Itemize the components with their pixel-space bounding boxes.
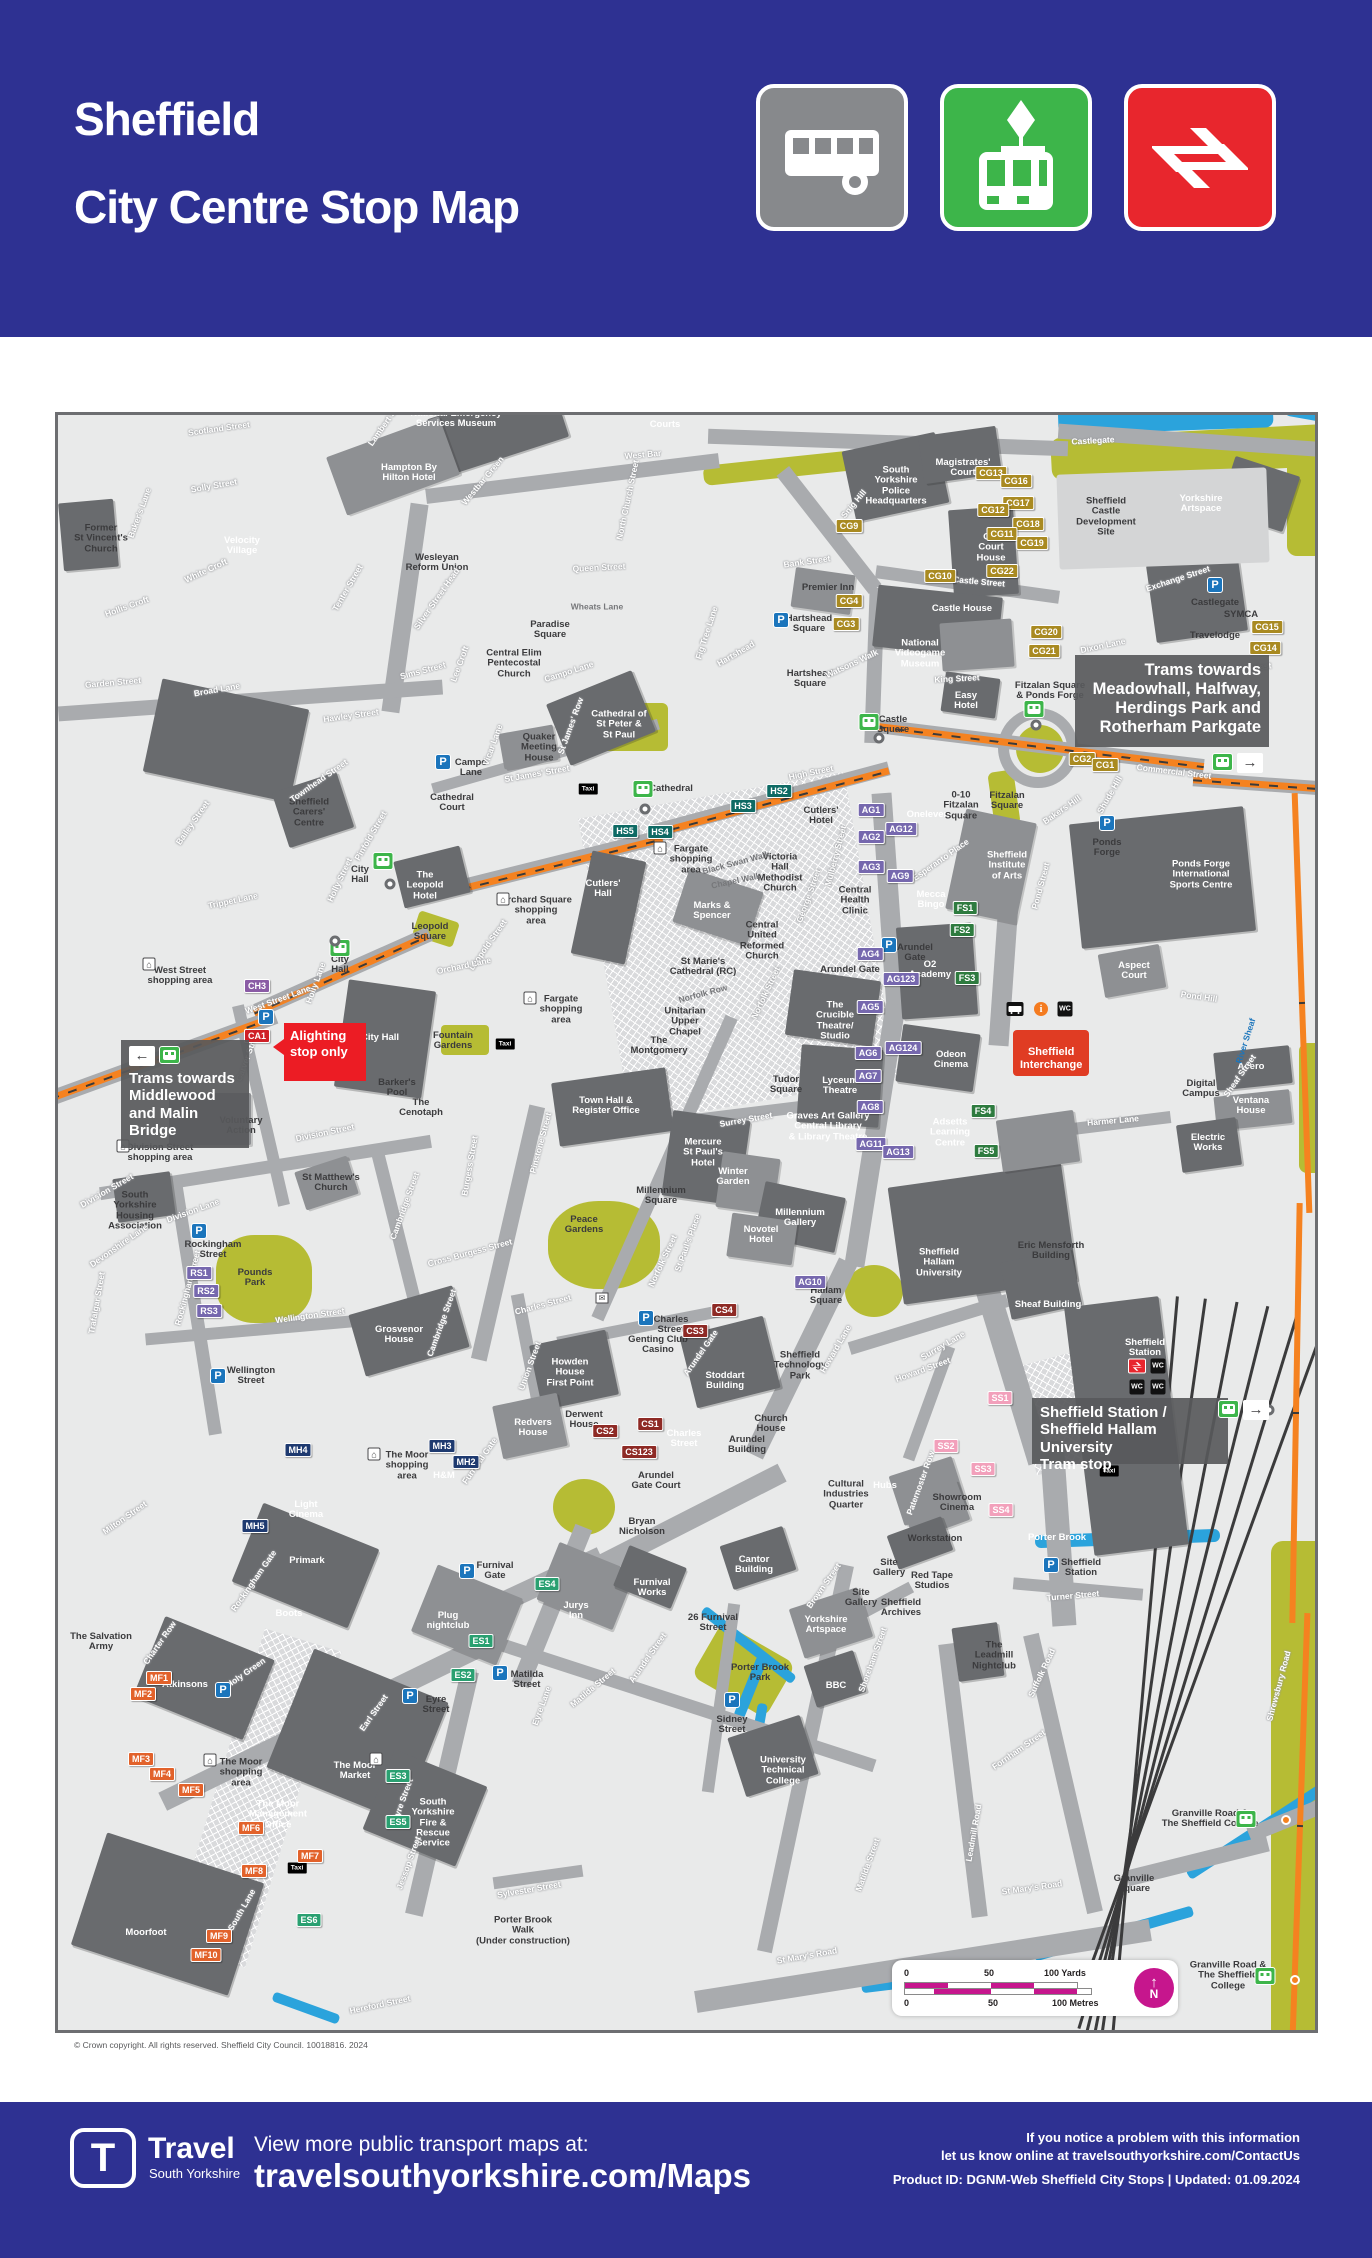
stop-chip-RS3: RS3 bbox=[196, 1304, 222, 1318]
map-shape bbox=[393, 845, 471, 908]
logo-travel-text: Travel bbox=[148, 2132, 235, 2166]
tram-stop-marker bbox=[640, 804, 651, 815]
stop-chip-CG19: CG19 bbox=[1016, 536, 1048, 550]
road-segment bbox=[493, 1865, 584, 1889]
scale-metres-50: 50 bbox=[988, 1998, 998, 2008]
stop-chip-FS1: FS1 bbox=[953, 901, 978, 915]
stop-chip-AG7: AG7 bbox=[855, 1069, 882, 1083]
map-shape bbox=[551, 1067, 674, 1146]
tram-icon bbox=[1212, 753, 1233, 771]
map-label: Holly Street bbox=[326, 857, 354, 904]
map-label: Orchard Square shopping area bbox=[500, 896, 572, 927]
shopping-area-icon: ⌂ bbox=[370, 1753, 383, 1766]
information-icon: i bbox=[1034, 1002, 1048, 1016]
stop-chip-AG2: AG2 bbox=[858, 830, 885, 844]
map-shape bbox=[895, 1024, 980, 1092]
map-label: Pond Hill bbox=[1180, 990, 1218, 1004]
map-label: Fig Tree Lane bbox=[694, 606, 720, 661]
map-label: Hereford Street bbox=[349, 1994, 411, 2016]
header-banner: Sheffield City Centre Stop Map bbox=[0, 0, 1372, 337]
map-shape bbox=[996, 1110, 1080, 1172]
map-label: Cultural Industries Quarter bbox=[823, 1480, 868, 1511]
taxi-icon: Taxi bbox=[496, 1039, 515, 1050]
north-arrow: ↑ N bbox=[1134, 1968, 1174, 2008]
stop-chip-AG123: AG123 bbox=[883, 972, 920, 986]
map-label: Arundel Gate Court bbox=[631, 1471, 680, 1492]
stop-chip-CG15: CG15 bbox=[1251, 620, 1283, 634]
map-label: Arundel Street bbox=[627, 1631, 668, 1684]
stop-chip-MF10: MF10 bbox=[190, 1948, 221, 1962]
parking-icon: P bbox=[402, 1688, 418, 1704]
parking-icon: P bbox=[724, 1692, 740, 1708]
arrow-right-icon: → bbox=[1237, 753, 1263, 773]
map-label: The Moor shopping area bbox=[386, 1451, 429, 1482]
map-label: Devonshire Lane bbox=[88, 1223, 149, 1270]
map-shape bbox=[492, 1393, 568, 1460]
road-segment bbox=[938, 1643, 987, 1918]
shopping-area-icon: ⌂ bbox=[204, 1754, 217, 1767]
taxi-icon: Taxi bbox=[579, 784, 598, 795]
map-label: Hollis Croft bbox=[104, 595, 150, 619]
stop-chip-MF6: MF6 bbox=[238, 1821, 264, 1835]
map-label: Dixon Lane bbox=[1080, 637, 1127, 655]
page-title-line2: City Centre Stop Map bbox=[74, 180, 519, 234]
parking-icon: P bbox=[215, 1682, 231, 1698]
stop-chip-ES5: ES5 bbox=[385, 1815, 410, 1829]
stop-chip-CS3: CS3 bbox=[682, 1324, 708, 1338]
map-label: Tenter Street bbox=[331, 563, 365, 612]
map-label: Cathedral Court bbox=[430, 793, 474, 814]
map-shape bbox=[939, 619, 1014, 672]
shopping-area-icon: ⌂ bbox=[143, 958, 156, 971]
scale-bar-metres bbox=[904, 1988, 1092, 1995]
toilets-icon: WC bbox=[1151, 1380, 1166, 1395]
post-office-icon: ✉ bbox=[596, 1293, 609, 1304]
map-label: Milton Street bbox=[101, 1499, 148, 1536]
map-label: Scotland Street bbox=[187, 420, 250, 438]
stop-chip-CH3: CH3 bbox=[244, 979, 270, 993]
map-label: Charles Street bbox=[667, 1429, 702, 1450]
map-label: Garden Street bbox=[85, 676, 142, 690]
map-shape bbox=[951, 1622, 1004, 1682]
stop-chip-MH3: MH3 bbox=[428, 1439, 455, 1453]
page-title-line1: Sheffield bbox=[74, 92, 259, 146]
stop-chip-CG21: CG21 bbox=[1028, 644, 1060, 658]
scale-yards-100: 100 Yards bbox=[1044, 1968, 1086, 1978]
map-label: Furnival Gate bbox=[477, 1561, 514, 1582]
stop-chip-MH2: MH2 bbox=[452, 1455, 479, 1469]
stop-chip-MF5: MF5 bbox=[178, 1783, 204, 1797]
stop-chip-FS3: FS3 bbox=[955, 971, 980, 985]
stop-chip-CG22: CG22 bbox=[986, 564, 1018, 578]
road-segment bbox=[1023, 1633, 1103, 1914]
road-segment bbox=[1125, 1836, 1270, 1887]
map-label: Fornham Street bbox=[991, 1728, 1048, 1772]
map-label: Wellington Street bbox=[227, 1366, 275, 1387]
footer-notice: If you notice a problem with this inform… bbox=[941, 2129, 1300, 2164]
map-label: Trippet Lane bbox=[207, 891, 258, 910]
map-label: Mecca Bingo bbox=[916, 890, 945, 911]
road-segment bbox=[471, 1105, 545, 1362]
stop-chip-HS4: HS4 bbox=[647, 825, 673, 839]
map-label: Silver Street Head bbox=[412, 567, 461, 632]
callout-alighting-stop: Alighting stop only bbox=[284, 1023, 366, 1081]
tram-icon bbox=[940, 84, 1092, 231]
stop-chip-SS3: SS3 bbox=[970, 1462, 995, 1476]
map-label: Central Elim Pentecostal Church bbox=[486, 649, 541, 680]
map-shape bbox=[789, 1587, 874, 1659]
stop-chip-AG10: AG10 bbox=[794, 1275, 826, 1289]
map-shape bbox=[940, 671, 1000, 718]
tram-stop-marker bbox=[1031, 720, 1042, 731]
map-label: Paradise Square bbox=[530, 620, 570, 641]
arrow-left-icon: ← bbox=[129, 1046, 155, 1066]
toilets-icon: WC bbox=[1058, 1002, 1073, 1017]
tram-stop-marker bbox=[1281, 1815, 1291, 1825]
stop-chip-MF2: MF2 bbox=[130, 1687, 156, 1701]
map-shape bbox=[887, 1516, 954, 1570]
map-shape bbox=[1146, 553, 1248, 643]
map-shape bbox=[1176, 1117, 1242, 1173]
interchange-text: Sheffield Interchange bbox=[1020, 1046, 1082, 1071]
map-label: H&M bbox=[433, 1471, 455, 1481]
parking-icon: P bbox=[881, 937, 897, 953]
river bbox=[1284, 412, 1318, 423]
map-label: Boots bbox=[276, 1609, 303, 1619]
map-label: Queen Street bbox=[572, 562, 625, 574]
callout-trams-northeast-text: Trams towards Meadowhall, Halfway, Herdi… bbox=[1093, 661, 1261, 736]
stop-chip-ES4: ES4 bbox=[534, 1577, 559, 1591]
map-shape bbox=[1056, 467, 1269, 569]
stop-chip-CS1: CS1 bbox=[637, 1417, 663, 1431]
map-label: Matilda Street bbox=[854, 1837, 882, 1893]
callout-ne-icons: → bbox=[1212, 753, 1263, 773]
map-label: Lee Croft bbox=[449, 645, 470, 683]
map-shape bbox=[348, 1285, 469, 1376]
map-label: Campo Lane bbox=[543, 660, 594, 684]
bus-interchange-icon bbox=[1007, 1002, 1024, 1016]
tram-stop-marker bbox=[1290, 1975, 1300, 1985]
stop-chip-SS2: SS2 bbox=[933, 1439, 958, 1453]
map-label: Shude Hill bbox=[1096, 775, 1125, 816]
map-label: Courts bbox=[650, 420, 681, 430]
stop-chip-CG14: CG14 bbox=[1249, 641, 1281, 655]
sheffield-interchange-badge: Sheffield Interchange bbox=[1013, 1030, 1089, 1076]
footer-maps-url: travelsouthyorkshire.com/Maps bbox=[254, 2157, 751, 2195]
parking-icon: P bbox=[191, 1223, 207, 1239]
map-shape bbox=[1213, 1045, 1293, 1091]
map-label: Fargate shopping area bbox=[540, 995, 583, 1026]
stop-chip-ES6: ES6 bbox=[296, 1913, 321, 1927]
stop-chip-CG1: CG1 bbox=[1092, 758, 1119, 772]
callout-alighting-text: Alighting stop only bbox=[290, 1028, 348, 1059]
map-label: Baker's Lane bbox=[127, 487, 154, 540]
stop-chip-MF7: MF7 bbox=[297, 1849, 323, 1863]
map-label: Bank Street bbox=[783, 554, 831, 570]
map-label: Pond Street bbox=[1030, 862, 1051, 910]
map-label: St Mary's Road bbox=[776, 1946, 838, 1966]
national-rail-icon bbox=[1128, 1359, 1146, 1374]
stop-chip-AG8: AG8 bbox=[857, 1100, 884, 1114]
national-rail-icon bbox=[1124, 84, 1276, 231]
stop-chip-HS5: HS5 bbox=[612, 824, 638, 838]
shopping-area-icon: ⌂ bbox=[524, 992, 537, 1005]
stop-chip-CS4: CS4 bbox=[711, 1303, 737, 1317]
map-label: Bailey Street bbox=[174, 799, 211, 846]
stop-chip-MH5: MH5 bbox=[241, 1519, 268, 1533]
footer-maps-prompt: View more public transport maps at: bbox=[254, 2133, 589, 2157]
stop-chip-ES3: ES3 bbox=[385, 1769, 410, 1783]
map-label: West Bar bbox=[624, 449, 661, 461]
stop-chip-FS2: FS2 bbox=[950, 923, 975, 937]
map-label: Division Street bbox=[295, 1122, 355, 1143]
parking-icon: P bbox=[1099, 815, 1115, 831]
map-label: Porter Brook Walk (Under construction) bbox=[476, 1916, 570, 1947]
tram-stop-marker bbox=[385, 879, 396, 890]
parking-icon: P bbox=[773, 612, 789, 628]
stop-chip-FS5: FS5 bbox=[974, 1144, 999, 1158]
parking-icon: P bbox=[258, 1009, 274, 1025]
tram-icon bbox=[159, 1046, 180, 1064]
green-space bbox=[216, 1235, 312, 1323]
map-label: Hartshead bbox=[716, 640, 757, 669]
map-shape bbox=[726, 1213, 797, 1266]
map-label: Hartshead Square bbox=[786, 614, 832, 635]
map-label: Trafalgar Street bbox=[87, 1271, 107, 1334]
map-label: City Hall bbox=[351, 865, 369, 886]
map-label: Velocity Village bbox=[224, 536, 260, 557]
toilets-icon: WC bbox=[1151, 1359, 1166, 1374]
map-shape bbox=[58, 499, 119, 572]
stop-chip-CG10: CG10 bbox=[924, 569, 956, 583]
shopping-area-icon: ⌂ bbox=[654, 842, 667, 855]
map-label: Adsetts Learning Centre bbox=[930, 1118, 970, 1149]
map-label: Orchard Lane bbox=[436, 956, 492, 976]
stop-chip-RS2: RS2 bbox=[193, 1284, 219, 1298]
map-shape bbox=[112, 1171, 176, 1223]
stop-chip-CS2: CS2 bbox=[592, 1424, 618, 1438]
stop-chip-AG9: AG9 bbox=[887, 869, 914, 883]
map-shape bbox=[720, 1526, 797, 1590]
stop-chip-CS123: CS123 bbox=[621, 1445, 657, 1459]
stop-chip-CG20: CG20 bbox=[1030, 625, 1062, 639]
green-space bbox=[441, 1025, 489, 1055]
map-label: Sims Street bbox=[399, 661, 447, 682]
tram-stop-marker bbox=[330, 936, 341, 947]
map-label: Solly Street bbox=[190, 477, 238, 494]
tram-stop-icon bbox=[1024, 700, 1045, 718]
tram-stop-icon bbox=[373, 852, 394, 870]
copyright-line: © Crown copyright. All rights reserved. … bbox=[74, 2040, 368, 2050]
callout-station-text: Sheffield Station / Sheffield Hallam Uni… bbox=[1040, 1404, 1167, 1473]
callout-station-tram-stop: Sheffield Station / Sheffield Hallam Uni… bbox=[1032, 1398, 1228, 1464]
parking-icon: P bbox=[1043, 1557, 1059, 1573]
stop-chip-AG12: AG12 bbox=[885, 822, 917, 836]
footer-banner: T Travel South Yorkshire View more publi… bbox=[0, 2102, 1372, 2258]
map-label: Red Tape Studios bbox=[911, 1571, 953, 1592]
stop-chip-CG12: CG12 bbox=[977, 503, 1009, 517]
stop-chip-HS3: HS3 bbox=[730, 799, 756, 813]
map-label: The Salvation Army bbox=[70, 1632, 132, 1653]
map-label: Leopold Street bbox=[467, 918, 509, 972]
footer-notice-line1: If you notice a problem with this inform… bbox=[1026, 2130, 1300, 2145]
tram-stop-marker bbox=[874, 733, 885, 744]
stop-chip-MF4: MF4 bbox=[149, 1767, 175, 1781]
stop-chip-AG5: AG5 bbox=[857, 1000, 884, 1014]
map-label: Eyre Lane bbox=[531, 1685, 554, 1726]
map-label: St Mary's Road bbox=[1001, 1879, 1063, 1897]
parking-icon: P bbox=[459, 1563, 475, 1579]
scale-yards-0: 0 bbox=[904, 1968, 909, 1978]
map-label: The Cenotaph bbox=[399, 1098, 443, 1119]
stop-chip-MF9: MF9 bbox=[206, 1929, 232, 1943]
stop-chip-SS4: SS4 bbox=[988, 1503, 1013, 1517]
stop-chip-CG11: CG11 bbox=[986, 527, 1017, 541]
tram-stop-icon bbox=[859, 713, 880, 731]
callout-sw-icons: ← bbox=[129, 1046, 241, 1066]
callout-trams-northeast: Trams towards Meadowhall, Halfway, Herdi… bbox=[1075, 655, 1269, 747]
stop-chip-RS1: RS1 bbox=[186, 1266, 212, 1280]
parking-icon: P bbox=[492, 1665, 508, 1681]
callout-trams-southwest-text: Trams towards Middlewood and Malin Bridg… bbox=[129, 1070, 235, 1139]
parking-icon: P bbox=[435, 754, 451, 770]
shopping-area-icon: ⌂ bbox=[497, 893, 510, 906]
page: { "header": { "title_line1": "Sheffield"… bbox=[0, 0, 1372, 2258]
scale-metres-0: 0 bbox=[904, 1998, 909, 2008]
callout-station-icons: → bbox=[1218, 1400, 1269, 1420]
footer-notice-line2: let us know online at travelsouthyorkshi… bbox=[941, 2148, 1300, 2163]
logo-subtext: South Yorkshire bbox=[149, 2166, 240, 2181]
north-letter: N bbox=[1150, 1989, 1159, 2000]
stop-chip-ES2: ES2 bbox=[450, 1668, 475, 1682]
city-centre-map: South Yorkshire Police HeadquartersMagis… bbox=[55, 412, 1318, 2033]
map-label: Burgess Street bbox=[460, 1135, 480, 1196]
parking-icon: P bbox=[638, 1310, 654, 1326]
tram-stop-icon bbox=[633, 780, 654, 798]
callout-trams-southwest: ← Trams towards Middlewood and Malin Bri… bbox=[121, 1040, 249, 1148]
map-label: Hawley Street bbox=[323, 708, 379, 725]
stop-chip-AG3: AG3 bbox=[858, 860, 885, 874]
map-label: Cathedral bbox=[649, 784, 693, 794]
travel-south-yorkshire-logo: T bbox=[70, 2128, 136, 2188]
stop-chip-CG9: CG9 bbox=[836, 519, 863, 533]
map-shape bbox=[1069, 806, 1256, 949]
map-label: Wheats Lane bbox=[571, 602, 623, 611]
stop-chip-AG13: AG13 bbox=[882, 1145, 914, 1159]
map-label: Hartshead Square bbox=[787, 669, 833, 690]
tram-stop-icon bbox=[1236, 1810, 1257, 1828]
map-shape bbox=[1098, 944, 1167, 998]
map-label: West Street shopping area bbox=[148, 966, 213, 987]
stop-chip-CG16: CG16 bbox=[1000, 474, 1032, 488]
parking-icon: P bbox=[1207, 577, 1223, 593]
tram-stop-icon bbox=[1255, 1967, 1276, 1985]
stop-chip-AG1: AG1 bbox=[858, 803, 885, 817]
stop-chip-AG4: AG4 bbox=[857, 947, 884, 961]
arrow-right-icon: → bbox=[1243, 1400, 1269, 1420]
scale-yards-50: 50 bbox=[984, 1968, 994, 1978]
map-label: St Paul's Place bbox=[673, 1213, 702, 1273]
stop-chip-SS1: SS1 bbox=[987, 1391, 1012, 1405]
stop-chip-CG3: CG3 bbox=[833, 617, 860, 631]
stop-chip-AG6: AG6 bbox=[855, 1046, 882, 1060]
stop-chip-CG4: CG4 bbox=[836, 594, 863, 608]
bus-icon bbox=[756, 84, 908, 231]
stop-chip-AG124: AG124 bbox=[885, 1041, 922, 1055]
stop-chip-MF8: MF8 bbox=[241, 1864, 267, 1878]
parking-icon: P bbox=[210, 1368, 226, 1384]
stop-chip-ES1: ES1 bbox=[468, 1634, 493, 1648]
river bbox=[271, 1991, 340, 2024]
shopping-area-icon: ⌂ bbox=[368, 1448, 381, 1461]
stop-chip-MF3: MF3 bbox=[128, 1752, 154, 1766]
stop-chip-MF1: MF1 bbox=[146, 1671, 172, 1685]
map-shape bbox=[498, 724, 558, 769]
map-label: Bakers Hill bbox=[1041, 794, 1082, 827]
taxi-icon: Taxi bbox=[288, 1863, 307, 1874]
stop-chip-HS2: HS2 bbox=[766, 784, 792, 798]
tram-icon bbox=[1218, 1400, 1239, 1418]
scale-metres-100: 100 Metres bbox=[1052, 1998, 1099, 2008]
stop-chip-MH4: MH4 bbox=[284, 1443, 311, 1457]
map-shape bbox=[948, 506, 1019, 598]
toilets-icon: WC bbox=[1130, 1380, 1145, 1395]
map-label: White Croft bbox=[183, 557, 228, 585]
map-label: Oneleven bbox=[907, 810, 950, 820]
stop-chip-FS4: FS4 bbox=[971, 1104, 996, 1118]
road-segment bbox=[1013, 1577, 1144, 1600]
footer-product-id: Product ID: DGNM-Web Sheffield City Stop… bbox=[893, 2172, 1300, 2187]
